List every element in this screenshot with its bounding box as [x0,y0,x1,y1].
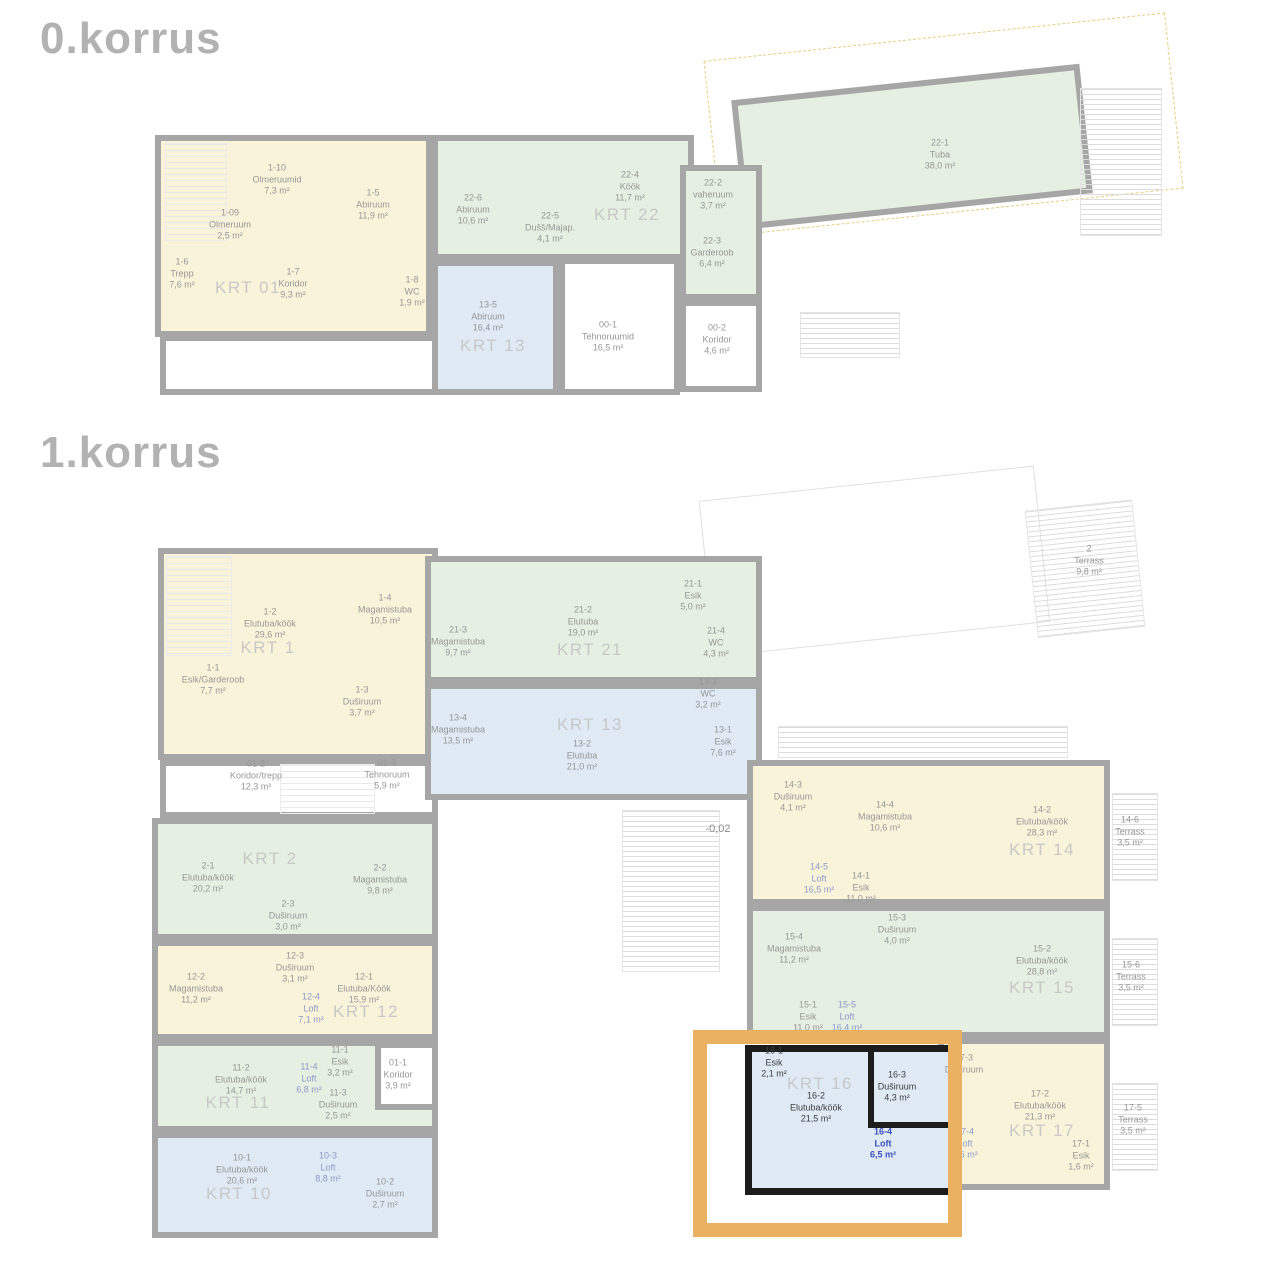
apartment-label-krt11: KRT 11 [206,1093,271,1113]
room-label-13-1: 13-1 Esik 7,6 m² [710,724,736,759]
room-label-1-4: 1-4 Magamistuba 10,5 m² [358,592,412,627]
room-label-10-1: 10-1 Elutuba/köök 20,6 m² [216,1152,268,1187]
room-label-14-1: 14-1 Esik 11,0 m² [846,870,876,905]
room-label-21-3: 21-3 Magamistuba 9,7 m² [431,624,485,659]
room-label-1-10: 1-10 Olmeruumid 7,3 m² [252,162,301,197]
floor0-title: 0.korrus [40,14,222,64]
room-label-01-1: 01-1 Koridor 3,9 m² [383,1057,412,1092]
room-label-14-2: 14-2 Elutuba/köök 28,3 m² [1016,804,1068,839]
room-label-13-2: 13-2 Elutuba 21,0 m² [567,738,598,773]
room-label-21-4: 21-4 WC 4,3 m² [703,625,729,660]
room-label-22-3: 22-3 Garderoob 6,4 m² [690,235,733,270]
stairs-hatch-krt1 [166,556,232,656]
apartment-label-krt1: KRT 1 [240,638,295,658]
highlight-box-krt16 [693,1030,962,1237]
terrace-label-15-6: 15-6 Terrass 3,5 m² [1116,959,1146,994]
terrace-label-2: 2 Terrass 9,8 m² [1074,543,1104,578]
room-label-13-5: 13-5 Abiruum 16,4 m² [471,299,505,334]
room-label-1-3: 1-3 Duširuum 3,7 m² [343,684,382,719]
room-label-1-8: 1-8 WC 1,9 m² [399,274,425,309]
room-label-15-2: 15-2 Elutuba/köök 28,8 m² [1016,943,1068,978]
room-label-22-6: 22-6 Abiruum 10,6 m² [456,192,490,227]
room-label-00-1: 00-1 Tehnoruumid 16,5 m² [582,319,634,354]
room-label-1-09: 1-09 Olmeruum 2,5 m² [209,207,251,242]
room-label-15-4: 15-4 Magamistuba 11,2 m² [767,931,821,966]
room-label-1-7: 1-7 Koridor 9,3 m² [278,266,307,301]
room-label-01-3: 01-3 Tehnoruum 5,9 m² [364,757,409,792]
room-label-2-1: 2-1 Elutuba/köök 20,2 m² [182,860,234,895]
room-label-13-4: 13-4 Magamistuba 13,5 m² [431,712,485,747]
room-label-21-2: 21-2 Elutuba 19,0 m² [568,604,599,639]
room-label-01-2: 01-2 Koridor/trepp 12,3 m² [230,758,282,793]
apartment-label-krt13-floor1: KRT 13 [557,715,623,735]
terrace-label-17-5: 17-5 Terrass 3,5 m² [1118,1102,1148,1137]
room-label-22-5: 22-5 Dušš/Majap. 4,1 m² [525,210,575,245]
room-label-2-2: 2-2 Magamistuba 9,8 m² [353,862,407,897]
room-label-14-5-loft: 14-5 Loft 16,5 m² [804,861,835,896]
room-label-22-1: 22-1 Tuba 38,0 m² [925,137,956,172]
room-label-13-3: 13-3 WC 3,2 m² [695,676,721,711]
apartment-label-krt22: KRT 22 [594,205,660,225]
apartment-label-krt10: KRT 10 [206,1184,272,1204]
level-marker: -0,02 [705,823,730,835]
room-label-00-2: 00-2 Koridor 4,6 m² [702,322,731,357]
room-label-10-3-loft: 10-3 Loft 8,8 m² [315,1150,341,1185]
room-label-22-4: 22-4 Köök 11,7 m² [615,169,645,204]
room-label-12-4-loft: 12-4 Loft 7,1 m² [298,991,324,1026]
room-label-21-1: 21-1 Esik 5,0 m² [680,578,706,613]
room-label-10-2: 10-2 Duširuum 2,7 m² [366,1176,405,1211]
apartment-label-krt15: KRT 15 [1009,978,1075,998]
room-label-1-5: 1-5 Abiruum 11,9 m² [356,187,390,222]
floorplan-page: { "floor0": { "title": "0.korrus", "apar… [0,0,1280,1280]
apartment-label-krt2: KRT 2 [242,849,297,869]
room-label-14-4: 14-4 Magamistuba 10,6 m² [858,799,912,834]
apartment-label-krt21: KRT 21 [557,640,623,660]
room-label-17-2: 17-2 Elutuba/köök 21,3 m² [1014,1088,1066,1123]
room-label-12-2: 12-2 Magamistuba 11,2 m² [169,971,223,1006]
room-label-2-3: 2-3 Duširuum 3,0 m² [269,898,308,933]
floor1-title: 1.korrus [40,428,222,478]
terrace-label-14-6: 14-6 Terrass 3,5 m² [1115,814,1145,849]
room-label-15-3: 15-3 Duširuum 4,0 m² [878,912,917,947]
room-label-17-1: 17-1 Esik 1,6 m² [1068,1138,1094,1173]
room-label-1-1: 1-1 Esik/Garderoob 7,7 m² [182,662,245,697]
apartment-label-krt01: KRT 01 [215,278,281,298]
room-label-11-1: 11-1 Esik 3,2 m² [327,1044,353,1079]
terrace-hatch-floor0 [1080,88,1162,236]
room-label-1-2: 1-2 Elutuba/köök 29,6 m² [244,606,296,641]
stairs-hatch-koridor [280,764,375,814]
apartment-label-krt12: KRT 12 [333,1002,399,1022]
room-label-1-6: 1-6 Trepp 7,6 m² [169,256,195,291]
apartment-label-krt14: KRT 14 [1009,840,1075,860]
room-label-22-2: 22-2 vaheruum 3,7 m² [693,177,733,212]
deck-hatch [778,726,1068,758]
room-label-12-3: 12-3 Duširuum 3,1 m² [276,950,315,985]
apartment-label-krt13-floor0: KRT 13 [460,336,526,356]
room-label-11-3: 11-3 Duširuum 2,5 m² [319,1087,358,1122]
room-label-14-3: 14-3 Duširuum 4,1 m² [774,779,813,814]
stairs-hatch-00-exterior [800,312,900,358]
apartment-label-krt17: KRT 17 [1009,1121,1075,1141]
